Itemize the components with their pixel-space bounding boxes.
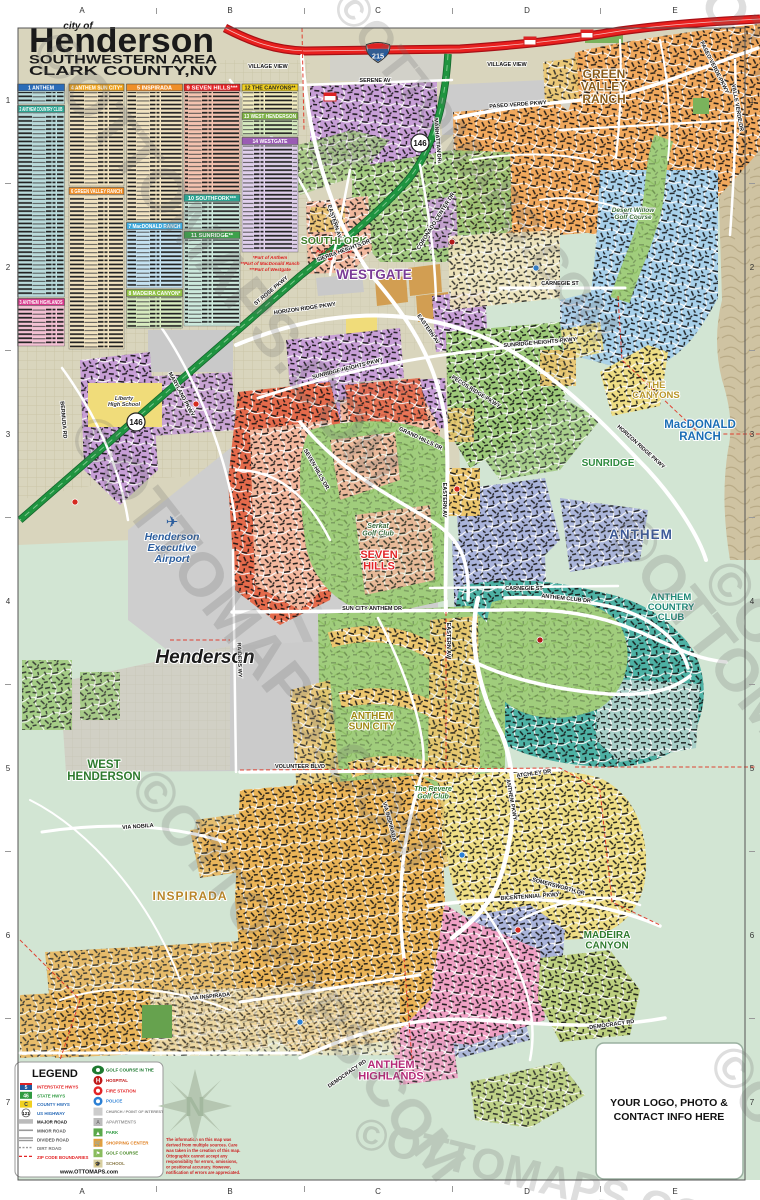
svg-text:5: 5 xyxy=(6,764,11,773)
svg-text:4: 4 xyxy=(750,597,755,606)
svg-text:3: 3 xyxy=(6,430,11,439)
svg-text:3: 3 xyxy=(750,430,755,439)
svg-text:SUNRIDGE: SUNRIDGE xyxy=(582,458,635,469)
svg-text:Golf Course: Golf Course xyxy=(614,214,652,221)
svg-text:EASTERN AV: EASTERN AV xyxy=(445,623,451,658)
svg-text:▲: ▲ xyxy=(95,1131,101,1137)
svg-text:E: E xyxy=(672,1187,677,1196)
svg-text:2: 2 xyxy=(6,263,11,272)
svg-text:2: 2 xyxy=(750,263,755,272)
svg-text:or positional accuracy. Howeve: or positional accuracy. However, xyxy=(166,1165,231,1170)
svg-text:121: 121 xyxy=(22,1111,30,1116)
svg-text:1: 1 xyxy=(6,96,11,105)
svg-text:4: 4 xyxy=(6,597,11,606)
svg-text:Golf Club: Golf Club xyxy=(417,793,449,800)
svg-text:RANCH: RANCH xyxy=(679,431,721,443)
svg-text:FIRE STATION: FIRE STATION xyxy=(106,1088,136,1093)
svg-text:MacDONALD: MacDONALD xyxy=(664,419,736,431)
svg-text:8 MADEIRA CANYON*: 8 MADEIRA CANYON* xyxy=(129,291,181,297)
svg-text:RANCH: RANCH xyxy=(582,92,625,106)
svg-text:DIVIDED ROAD: DIVIDED ROAD xyxy=(37,1137,69,1142)
svg-text:Ottographix cannot accept any: Ottographix cannot accept any xyxy=(166,1154,228,1159)
svg-text:H: H xyxy=(96,1078,100,1084)
svg-text:🎓: 🎓 xyxy=(95,1161,101,1168)
svg-text:SUN CITY ANTHEM DR: SUN CITY ANTHEM DR xyxy=(342,606,402,612)
svg-text:POLICE: POLICE xyxy=(106,1099,122,1104)
svg-text:COUNTY HWYS: COUNTY HWYS xyxy=(37,1102,70,1107)
svg-text:⚑: ⚑ xyxy=(96,1151,100,1157)
svg-text:MADEIRA: MADEIRA xyxy=(584,930,631,941)
svg-text:WESTGATE: WESTGATE xyxy=(336,267,412,282)
svg-text:C: C xyxy=(375,6,381,15)
svg-text:EASTERN AV: EASTERN AV xyxy=(441,483,447,518)
svg-text:🛒: 🛒 xyxy=(95,1140,102,1147)
svg-text:SEVEN: SEVEN xyxy=(360,549,397,561)
svg-text:N: N xyxy=(185,1091,205,1122)
svg-text:CARNEGIE ST: CARNEGIE ST xyxy=(505,586,543,592)
svg-text:SHOPPING CENTER: SHOPPING CENTER xyxy=(106,1140,149,1145)
svg-text:MAJOR ROAD: MAJOR ROAD xyxy=(37,1120,67,1125)
svg-text:B: B xyxy=(227,1187,232,1196)
svg-text:HENDERSON: HENDERSON xyxy=(67,771,140,783)
svg-text:CHURCH / POINT OF INTEREST: CHURCH / POINT OF INTEREST xyxy=(106,1110,164,1114)
svg-text:derived from multiple sources.: derived from multiple sources. Care xyxy=(166,1143,238,1148)
svg-text:CANYON: CANYON xyxy=(585,941,628,952)
svg-text:D: D xyxy=(524,1187,530,1196)
svg-text:D: D xyxy=(524,6,530,15)
svg-text:LEGEND: LEGEND xyxy=(32,1068,78,1080)
svg-text:3 ANTHEM HIGHLANDS: 3 ANTHEM HIGHLANDS xyxy=(20,300,64,306)
svg-text:CONTACT INFO HERE: CONTACT INFO HERE xyxy=(614,1111,725,1123)
svg-text:1: 1 xyxy=(750,96,755,105)
svg-text:responsibility for errors, omi: responsibility for errors, omissions, xyxy=(166,1159,237,1164)
svg-text:US HIGHWAY: US HIGHWAY xyxy=(37,1111,65,1116)
svg-text:VILLAGE VIEW: VILLAGE VIEW xyxy=(487,62,527,68)
svg-text:5: 5 xyxy=(25,1085,28,1091)
svg-text:MINOR ROAD: MINOR ROAD xyxy=(37,1129,66,1134)
svg-text:WEST: WEST xyxy=(87,759,120,771)
svg-text:Golf Club: Golf Club xyxy=(362,530,394,537)
svg-text:6: 6 xyxy=(6,931,11,940)
svg-text:E: E xyxy=(672,6,677,15)
svg-text:C: C xyxy=(24,1102,28,1108)
svg-text:APARTMENTS: APARTMENTS xyxy=(106,1120,136,1125)
svg-text:6: 6 xyxy=(750,931,755,940)
svg-text:INTERSTATE HWYS: INTERSTATE HWYS xyxy=(37,1085,78,1090)
svg-text:B: B xyxy=(227,6,232,15)
svg-text:HOSPITAL: HOSPITAL xyxy=(106,1078,128,1083)
svg-text:The information on this map wa: The information on this map was xyxy=(166,1137,232,1142)
svg-text:CANYONS: CANYONS xyxy=(632,390,680,401)
svg-text:46: 46 xyxy=(23,1093,29,1099)
svg-text:www.OTTOMAPS.com: www.OTTOMAPS.com xyxy=(59,1170,118,1176)
svg-text:5 INSPIRADA: 5 INSPIRADA xyxy=(137,85,172,91)
svg-text:notification of errors are app: notification of errors are appreciated. xyxy=(166,1170,240,1175)
svg-text:C: C xyxy=(375,1187,381,1196)
svg-text:was taken in the creation of t: was taken in the creation of this map. xyxy=(165,1148,240,1153)
svg-text:13 WEST HENDERSON: 13 WEST HENDERSON xyxy=(244,114,296,120)
svg-text:The Revere: The Revere xyxy=(414,786,452,793)
svg-text:HILLS: HILLS xyxy=(363,561,395,573)
svg-text:STATE HWYS: STATE HWYS xyxy=(37,1093,65,1098)
svg-text:SCHOOL: SCHOOL xyxy=(106,1161,125,1166)
svg-text:5: 5 xyxy=(750,764,755,773)
svg-text:7: 7 xyxy=(750,1098,755,1107)
svg-text:GOLF COURSE: GOLF COURSE xyxy=(106,1151,138,1156)
svg-text:146: 146 xyxy=(129,418,143,427)
svg-text:12 THE CANYONS**: 12 THE CANYONS** xyxy=(245,85,296,91)
svg-text:VILLAGE VIEW: VILLAGE VIEW xyxy=(248,64,288,70)
svg-text:6 GREEN VALLEY RANCH: 6 GREEN VALLEY RANCH xyxy=(71,189,122,195)
svg-text:YOUR LOGO, PHOTO &: YOUR LOGO, PHOTO & xyxy=(610,1097,728,1109)
svg-text:DIRT ROAD: DIRT ROAD xyxy=(37,1146,61,1151)
svg-text:9 SEVEN HILLS***: 9 SEVEN HILLS*** xyxy=(187,85,238,91)
svg-text:A: A xyxy=(79,1187,85,1196)
svg-text:Serkat: Serkat xyxy=(367,523,389,530)
svg-text:7: 7 xyxy=(6,1098,11,1107)
svg-text:PARK: PARK xyxy=(106,1130,119,1135)
svg-text:14 WESTGATE: 14 WESTGATE xyxy=(253,139,289,145)
svg-text:ZIP CODE BOUNDARIES: ZIP CODE BOUNDARIES xyxy=(37,1155,88,1160)
svg-text:A: A xyxy=(79,6,85,15)
svg-text:GOLF COURSE IN THE: GOLF COURSE IN THE xyxy=(106,1068,154,1073)
